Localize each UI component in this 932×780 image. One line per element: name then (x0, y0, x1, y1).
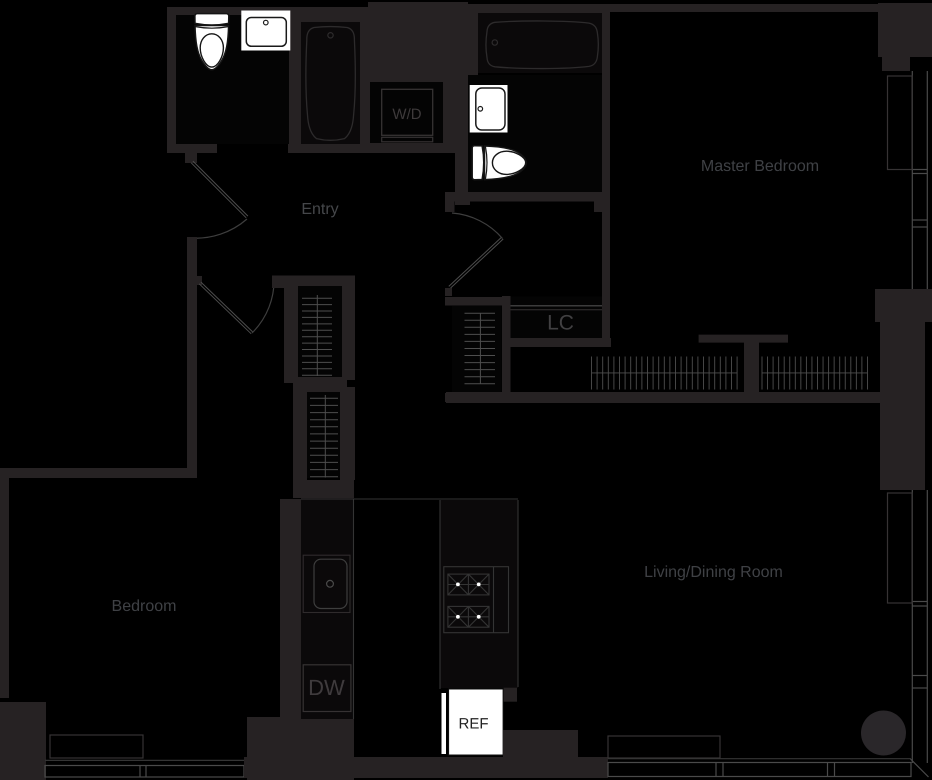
svg-text:Entry: Entry (301, 201, 338, 218)
svg-text:DW: DW (308, 675, 345, 700)
svg-text:Living/Dining Room: Living/Dining Room (644, 564, 783, 581)
svg-text:LC: LC (547, 312, 574, 335)
svg-text:Master Bedroom: Master Bedroom (701, 158, 819, 175)
svg-text:Bedroom: Bedroom (112, 598, 177, 615)
svg-text:REF: REF (459, 716, 489, 733)
svg-text:W/D: W/D (392, 106, 421, 123)
